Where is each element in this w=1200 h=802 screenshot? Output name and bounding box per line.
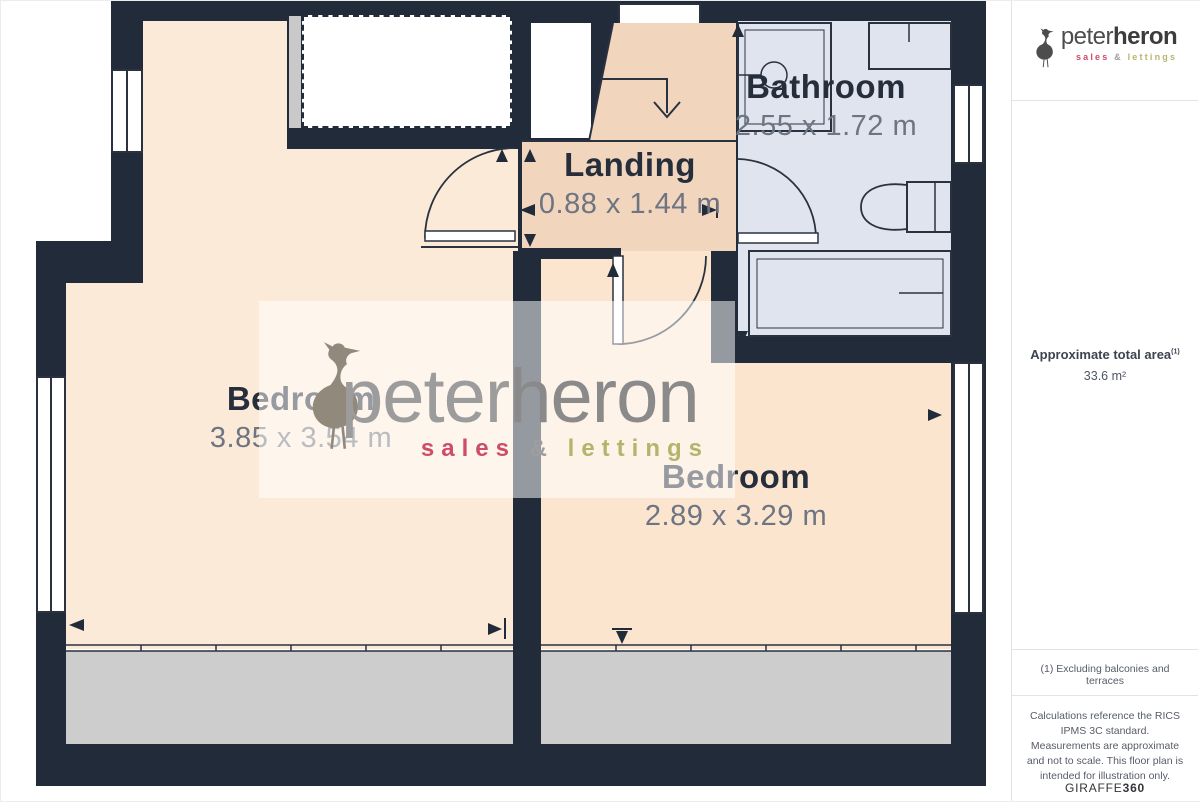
window-pane-divider [50, 378, 52, 611]
footnote-reference: (1) [1171, 349, 1180, 356]
bathroom-label-group: Bathroom 2.55 x 1.72 m [716, 69, 936, 143]
wall-left-step [36, 241, 143, 283]
room-dimensions: 0.88 x 1.44 m [521, 188, 739, 221]
wall-landing-bottom [518, 248, 621, 259]
floorplan-canvas: Bathroom 2.55 x 1.72 m Landing 0.88 x 1.… [1, 1, 1011, 801]
brand-heron: heron [509, 354, 698, 439]
brand-heron: heron [1113, 23, 1177, 50]
heron-icon [1033, 27, 1057, 69]
window-pane-divider [968, 86, 970, 162]
window-right-bedroom [953, 362, 984, 614]
room-dimensions: 2.55 x 1.72 m [716, 110, 936, 143]
watermark-tagline: sales & lettings [421, 435, 709, 463]
landing-label-group: Landing 0.88 x 1.44 m [521, 147, 739, 221]
room-bedroom-left-alcove [143, 21, 287, 149]
eaves-strip-left [66, 651, 513, 744]
wall-bottom [36, 744, 979, 786]
tagline-ampersand: & [1114, 52, 1123, 62]
divider [1012, 695, 1198, 696]
room-dimensions: 2.89 x 3.29 m [606, 500, 866, 533]
window-bathroom [953, 84, 984, 164]
tagline-sales: sales [421, 435, 516, 462]
total-area-value: 33.6 m² [1012, 369, 1198, 383]
tagline-sales: sales [1076, 52, 1110, 62]
window-pane-divider [126, 71, 128, 151]
wall-bathroom-bottom [711, 336, 951, 363]
eaves-strip-right [541, 651, 951, 744]
stairwell-window [618, 3, 701, 53]
dormer-skylight [302, 15, 512, 128]
divider [1012, 649, 1198, 650]
brand-watermark: peterheron sales & lettings [259, 301, 735, 498]
room-name: Landing [521, 147, 739, 183]
dormer-side-strip [289, 16, 301, 128]
window-pane-divider [968, 364, 970, 612]
brand-peter: peter [1061, 23, 1113, 50]
tagline-ampersand: & [530, 435, 554, 462]
logo-tagline: sales & lettings [1061, 52, 1177, 62]
floorplan-image: Bathroom 2.55 x 1.72 m Landing 0.88 x 1.… [0, 0, 1200, 802]
area-footnote: (1) Excluding balconies and terraces [1025, 663, 1185, 687]
room-bedroom-left-upper [143, 149, 518, 251]
disclaimer-text: Calculations reference the RICS IPMS 3C … [1026, 709, 1184, 784]
window-left-upper [111, 69, 143, 153]
window-left-bedroom [36, 376, 66, 613]
info-sidebar: peterheron sales & lettings Approximate … [1011, 1, 1198, 801]
watermark-brand: peterheron [341, 359, 699, 435]
tagline-lettings: lettings [568, 435, 709, 462]
logo-brand: peterheron [1061, 25, 1177, 49]
sidebar-logo-block: peterheron sales & lettings [1012, 1, 1198, 101]
brand-peter: peter [341, 354, 509, 439]
total-area-title: Approximate total area(1) [1012, 347, 1198, 362]
room-name: Bathroom [716, 69, 936, 105]
tagline-lettings: lettings [1128, 52, 1178, 62]
total-area-block: Approximate total area(1) 33.6 m² [1012, 347, 1198, 383]
giraffe360-credit: GIRAFFE360 [1012, 781, 1198, 795]
stair-void [531, 23, 591, 138]
